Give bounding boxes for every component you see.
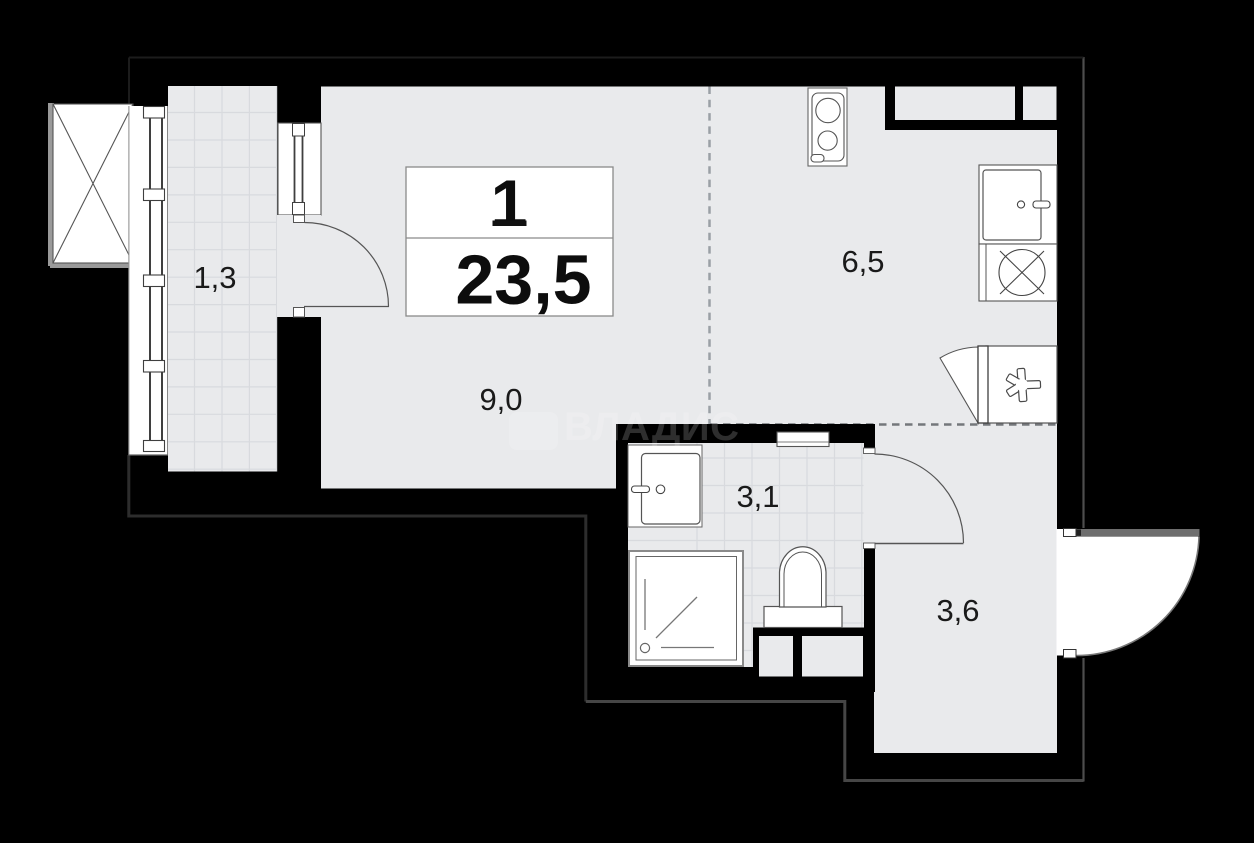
svg-text:9,0: 9,0 bbox=[479, 382, 522, 417]
svg-text:1: 1 bbox=[491, 166, 528, 240]
svg-text:3,6: 3,6 bbox=[936, 593, 979, 628]
svg-text:6,5: 6,5 bbox=[841, 244, 884, 279]
svg-text:23,5: 23,5 bbox=[455, 241, 591, 319]
svg-text:ВЛАДИС: ВЛАДИС bbox=[564, 405, 739, 449]
svg-text:3,1: 3,1 bbox=[736, 479, 779, 514]
svg-text:1,3: 1,3 bbox=[193, 260, 236, 295]
